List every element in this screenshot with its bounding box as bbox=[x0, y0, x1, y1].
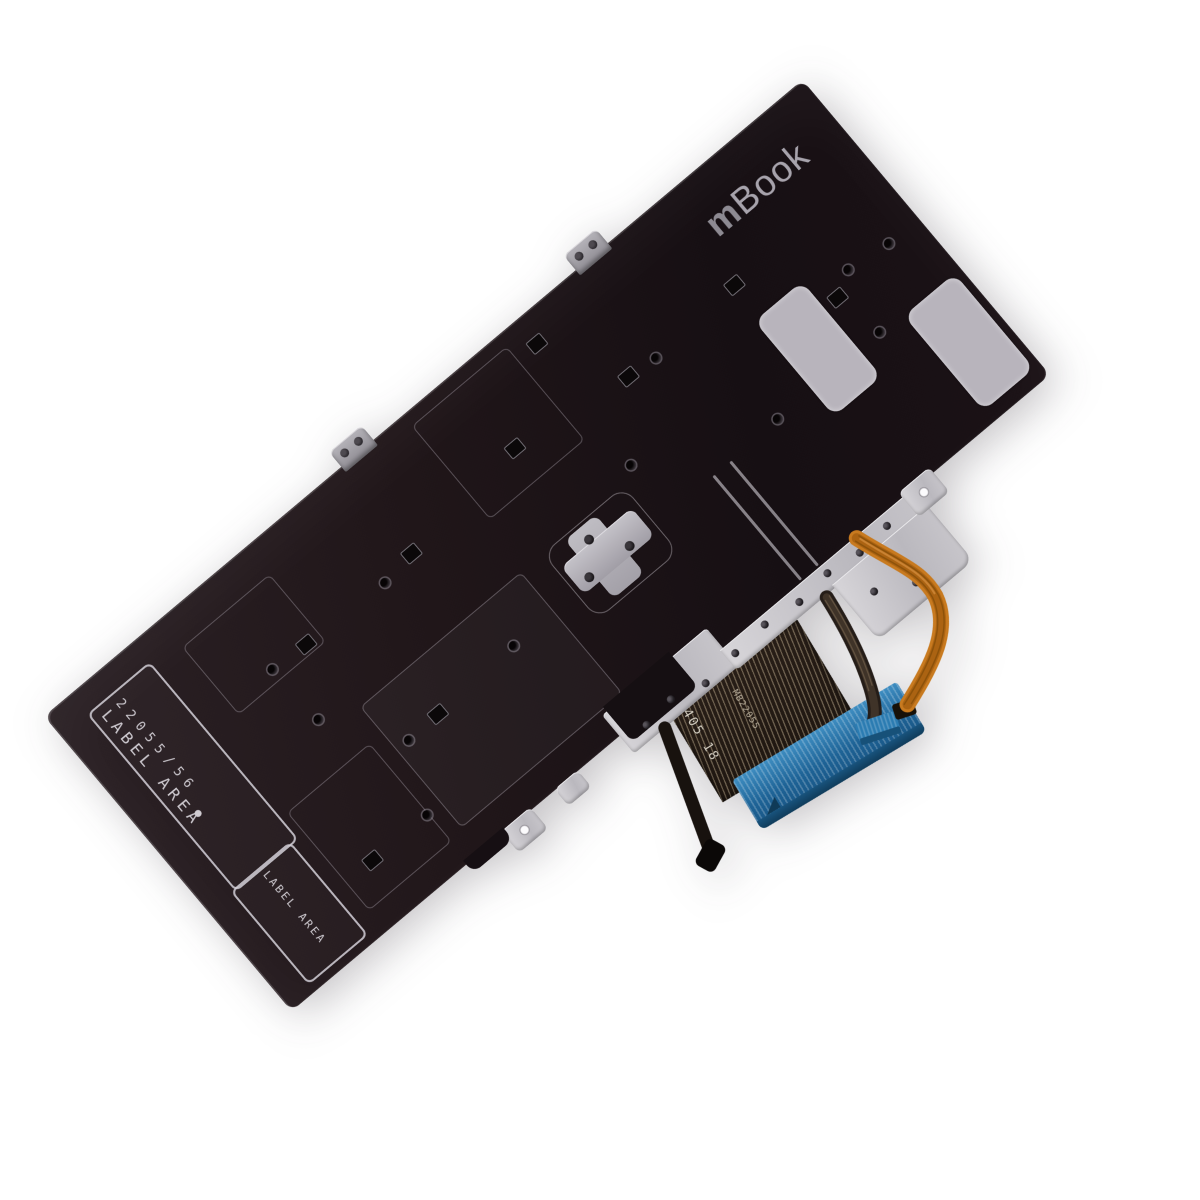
screw-hole bbox=[873, 325, 887, 339]
product-photo-scene: mBook 22055/56 LABEL AREA LABEL AREA bbox=[0, 0, 1200, 1200]
plate-edge-bump bbox=[463, 827, 513, 873]
label-area-text-2: LABEL AREA bbox=[260, 868, 329, 946]
part-number-text: 22055/56 bbox=[112, 696, 260, 868]
screw-hole bbox=[841, 263, 855, 277]
screw-hole bbox=[771, 412, 785, 426]
keyboard-backplate: mBook 22055/56 LABEL AREA LABEL AREA bbox=[44, 80, 1050, 1011]
label-sticker bbox=[904, 273, 1034, 410]
screw-hole bbox=[378, 576, 392, 590]
trackpoint-cable bbox=[792, 595, 911, 724]
square-hole bbox=[400, 542, 423, 565]
square-hole bbox=[525, 332, 548, 355]
mounting-tab-hole bbox=[587, 238, 600, 251]
brand-logo: mBook bbox=[698, 136, 815, 243]
silver-tab bbox=[501, 807, 548, 853]
label-area-box-1: 22055/56 LABEL AREA bbox=[87, 662, 299, 892]
screw-hole bbox=[882, 237, 896, 251]
square-hole bbox=[826, 286, 849, 309]
silver-tab bbox=[554, 770, 591, 806]
mounting-tab bbox=[329, 425, 378, 472]
silver-tab-hole bbox=[517, 822, 532, 837]
square-hole bbox=[617, 365, 640, 388]
label-sticker bbox=[754, 281, 881, 416]
mounting-tab-hole bbox=[352, 435, 365, 448]
mounting-tab bbox=[563, 229, 612, 276]
mounting-tab-hole bbox=[573, 250, 586, 263]
label-box-text: 22055/56 LABEL AREA bbox=[90, 688, 269, 890]
screw-hole bbox=[311, 713, 325, 727]
label-area-text-1: LABEL AREA bbox=[98, 706, 249, 881]
screw-hole bbox=[649, 351, 663, 365]
stick-knob bbox=[694, 837, 728, 874]
pointer-stick-cable bbox=[631, 728, 743, 850]
mounting-tab-hole bbox=[338, 447, 351, 460]
screw-hole bbox=[624, 458, 638, 472]
etched-rect bbox=[412, 346, 585, 519]
square-hole bbox=[723, 274, 746, 297]
